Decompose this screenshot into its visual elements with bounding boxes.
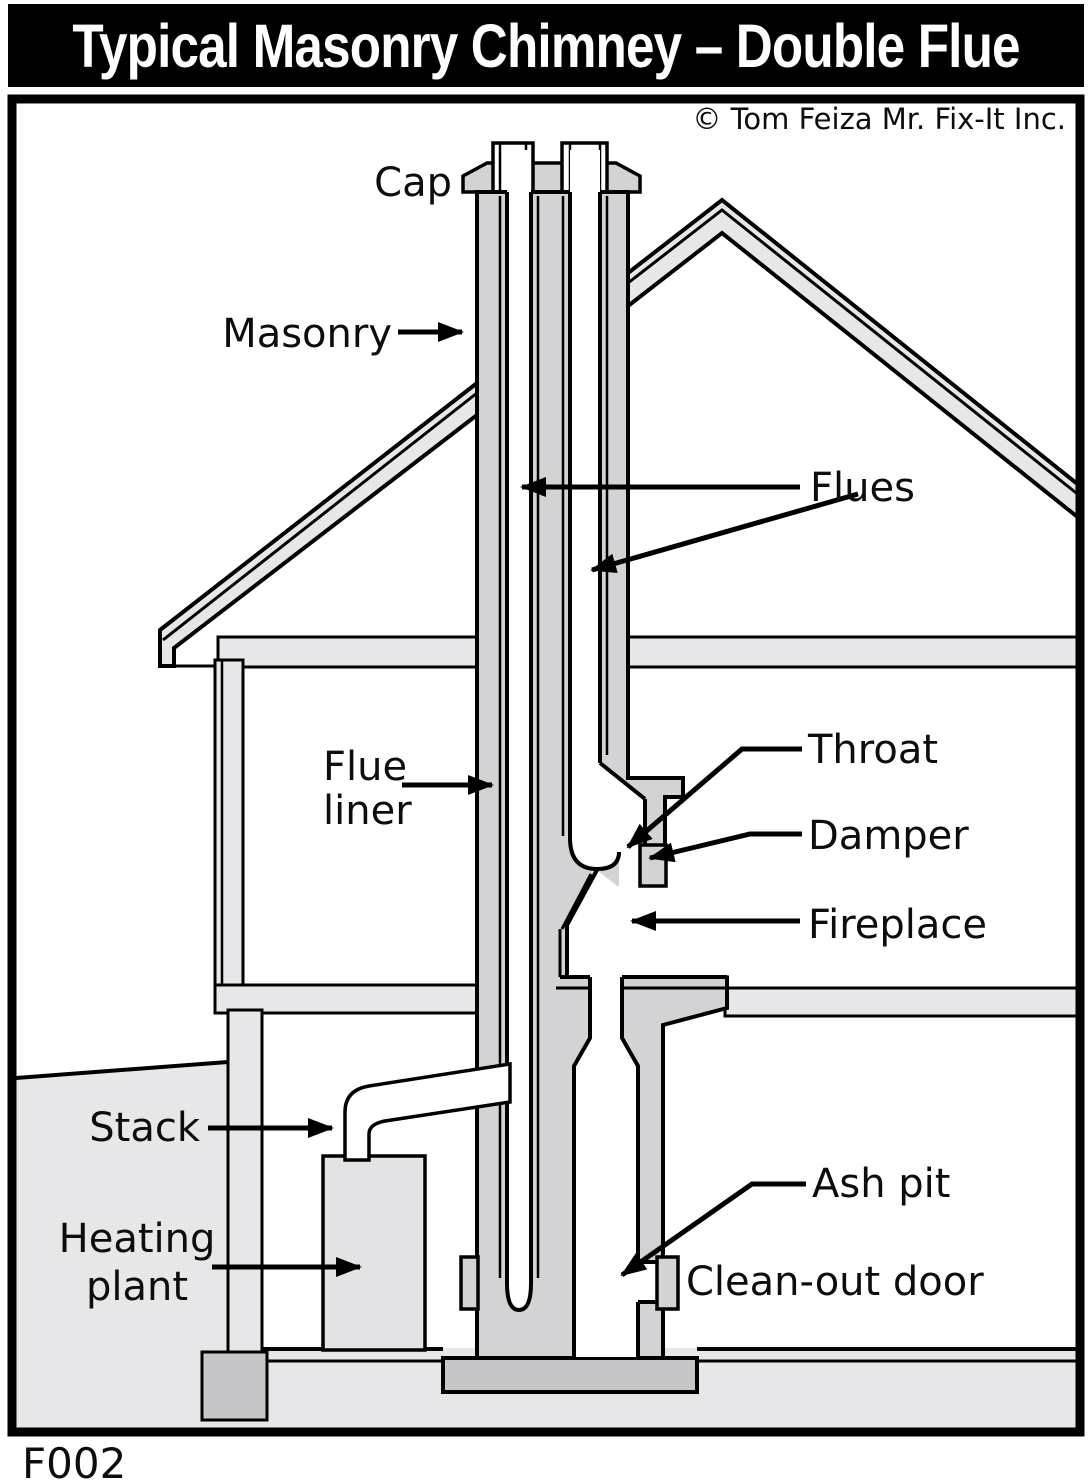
label-flues: Flues — [810, 465, 915, 511]
left-cleanout-block — [461, 1257, 478, 1309]
left-flue — [507, 150, 531, 1310]
copyright-text: © Tom Feiza Mr. Fix-It Inc. — [692, 102, 1066, 136]
label-cleanout-door: Clean-out door — [686, 1259, 984, 1305]
label-cap: Cap — [374, 160, 452, 206]
label-ash-pit: Ash pit — [812, 1161, 950, 1207]
title-group: Typical Masonry Chimney – Double Flue — [72, 12, 1019, 80]
foundation-wall — [228, 1010, 262, 1352]
label-flue-liner-1: Flue — [323, 744, 407, 790]
diagram-page: Cap Masonry Flues Flue liner Throat Damp… — [0, 0, 1092, 1483]
heating-plant — [323, 1156, 425, 1350]
page-title: Typical Masonry Chimney – Double Flue — [72, 12, 1019, 80]
chimney-footing — [443, 1358, 697, 1392]
ceiling-right — [628, 637, 1080, 667]
label-fireplace: Fireplace — [808, 902, 987, 948]
label-heating-2: plant — [86, 1264, 188, 1310]
damper — [640, 845, 666, 886]
first-floor-right — [725, 988, 1080, 1016]
label-stack: Stack — [89, 1105, 201, 1151]
left-wall — [215, 660, 243, 990]
label-heating-1: Heating — [59, 1216, 216, 1262]
ceiling-left — [218, 637, 477, 667]
figure-code: F002 — [22, 1439, 126, 1483]
diagram-canvas: Cap Masonry Flues Flue liner Throat Damp… — [0, 0, 1092, 1483]
label-flue-liner-2: liner — [323, 788, 412, 834]
label-throat: Throat — [807, 727, 938, 773]
throat-opening — [619, 847, 640, 887]
cleanout-door-block — [657, 1257, 678, 1309]
label-damper: Damper — [808, 813, 969, 859]
chimney-cap — [463, 163, 640, 192]
foundation-footing — [202, 1352, 267, 1420]
label-masonry: Masonry — [222, 311, 392, 357]
